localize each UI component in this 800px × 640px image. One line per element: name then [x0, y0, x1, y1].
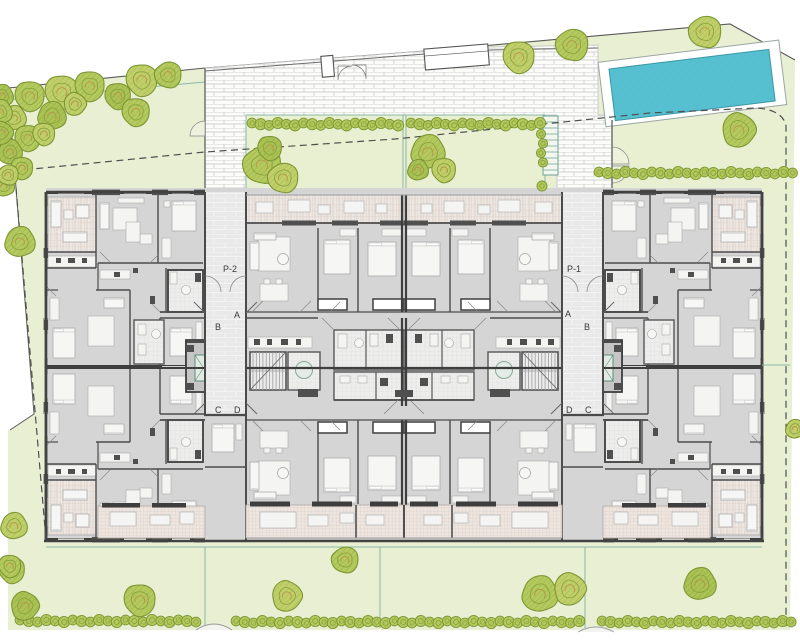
svg-text:D: D	[234, 405, 241, 415]
svg-text:A: A	[565, 309, 571, 319]
svg-text:C: C	[585, 405, 592, 415]
svg-text:D: D	[566, 405, 573, 415]
svg-text:C: C	[215, 405, 222, 415]
svg-text:B: B	[215, 322, 221, 332]
svg-text:A: A	[234, 310, 240, 320]
svg-text:P-2: P-2	[223, 264, 237, 274]
svg-text:P-1: P-1	[567, 264, 581, 274]
svg-text:B: B	[584, 322, 590, 332]
